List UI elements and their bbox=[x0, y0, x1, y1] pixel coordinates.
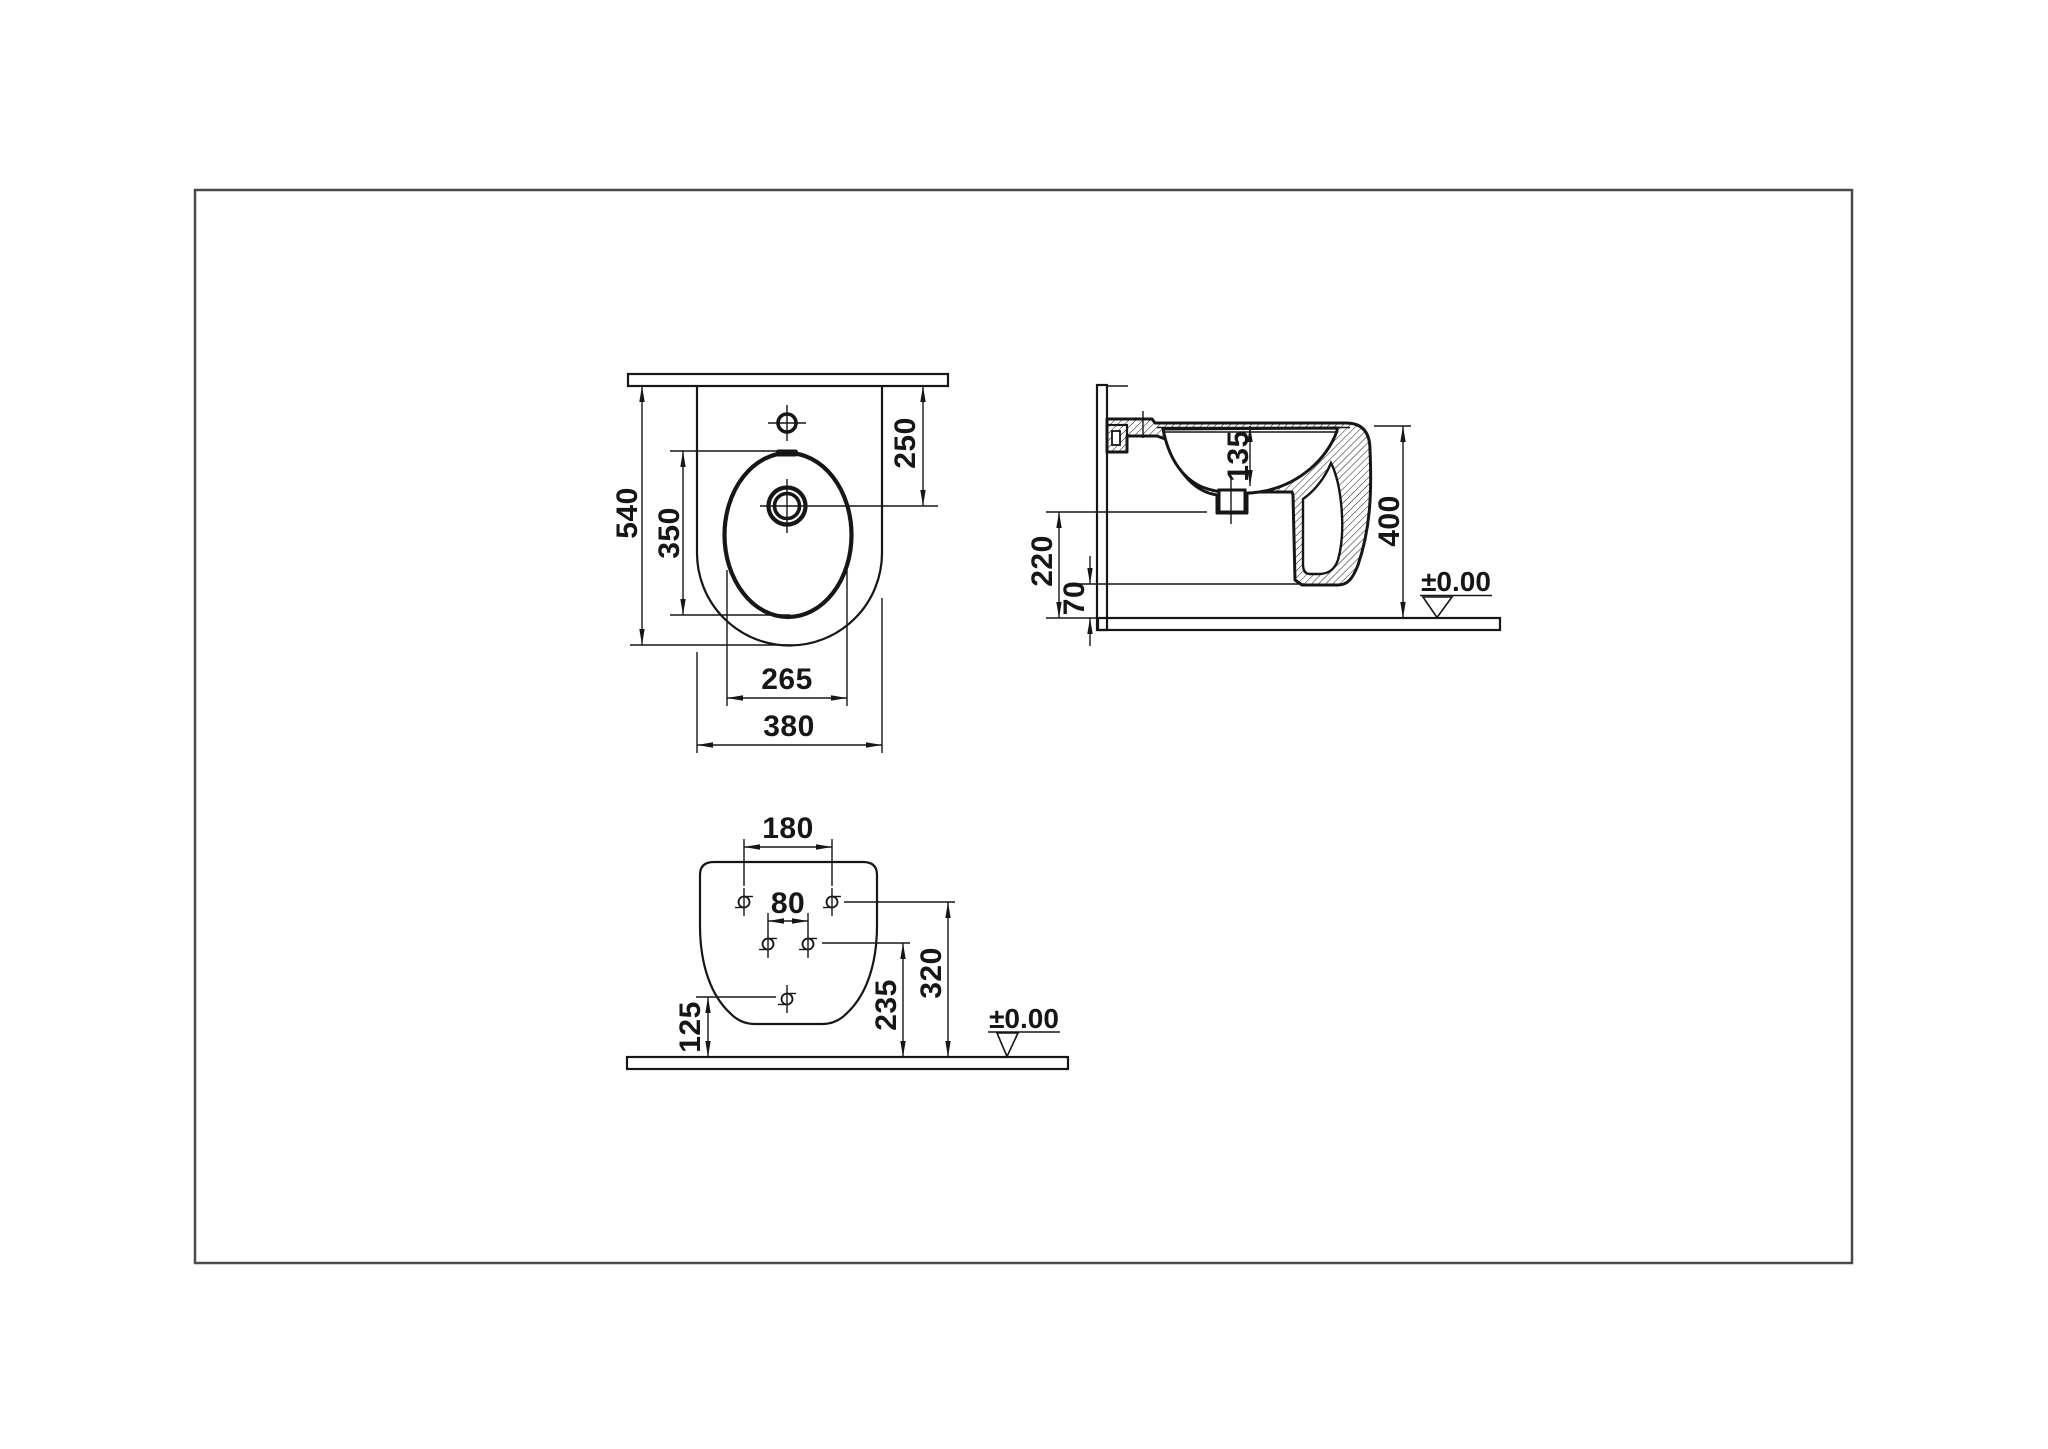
top-view: 540 350 250 265 380 bbox=[611, 374, 948, 753]
mounting-hole-mid-left bbox=[759, 930, 777, 958]
dim-label: 70 bbox=[1058, 581, 1091, 615]
dim-label: 540 bbox=[611, 487, 644, 539]
dim-label: 80 bbox=[771, 887, 805, 920]
dim-rim-height-400: 400 bbox=[1373, 426, 1406, 618]
dim-middle-holes-height-235: 235 bbox=[822, 943, 910, 1057]
datum-label: ±0.00 bbox=[989, 1003, 1059, 1034]
dim-clearance-70: 70 bbox=[1058, 556, 1091, 646]
floor-hatch bbox=[1098, 618, 1500, 630]
side-view: 135 400 220 70 ±0.00 bbox=[1026, 385, 1500, 646]
bidet-rim bbox=[725, 453, 852, 617]
drawing-canvas: 540 350 250 265 380 bbox=[0, 0, 2048, 1449]
dim-label: 135 bbox=[1222, 430, 1255, 482]
dim-lower-hole-height-125: 125 bbox=[674, 997, 776, 1057]
dim-label: 265 bbox=[761, 663, 813, 696]
mounting-hole-top-left bbox=[735, 888, 753, 916]
dim-label: 220 bbox=[1026, 535, 1059, 587]
faucet-hole bbox=[768, 405, 806, 441]
floor-datum-side: ±0.00 bbox=[1420, 566, 1492, 618]
wall-section-hatch bbox=[628, 374, 948, 386]
dim-middle-holes-80: 80 bbox=[768, 887, 808, 931]
dim-overall-depth-540: 540 bbox=[611, 386, 792, 645]
datum-triangle bbox=[997, 1033, 1018, 1057]
back-view: 180 80 320 235 125 ±0.00 bbox=[627, 812, 1068, 1069]
dim-drain-height-220: 220 bbox=[1026, 512, 1059, 618]
dim-label: 250 bbox=[889, 417, 922, 469]
dim-label: 180 bbox=[762, 812, 814, 845]
dim-label: 400 bbox=[1373, 495, 1406, 547]
floor-datum-back: ±0.00 bbox=[988, 1003, 1060, 1057]
dim-bowl-width-265: 265 bbox=[727, 570, 847, 706]
floor-hatch-back bbox=[627, 1057, 1068, 1069]
datum-triangle bbox=[1423, 597, 1452, 618]
datum-label: ±0.00 bbox=[1421, 566, 1491, 597]
dim-label: 235 bbox=[870, 979, 903, 1031]
dim-drain-from-wall-250: 250 bbox=[889, 386, 923, 506]
mounting-hole-top-right bbox=[823, 888, 841, 916]
dim-bowl-depth-135: 135 bbox=[1222, 426, 1255, 486]
dim-label: 380 bbox=[763, 710, 815, 743]
dim-upper-holes-180: 180 bbox=[744, 812, 832, 886]
lug-hole bbox=[1112, 431, 1120, 445]
drawing-border bbox=[195, 190, 1852, 1263]
dim-bowl-length-350: 350 bbox=[653, 451, 790, 615]
dim-label: 320 bbox=[915, 947, 948, 999]
drain-outlet bbox=[1219, 490, 1245, 512]
dim-label: 350 bbox=[653, 507, 686, 559]
mounting-hole-mid-right bbox=[799, 930, 817, 958]
dim-label: 125 bbox=[674, 1001, 707, 1053]
mounting-hole-bottom bbox=[778, 985, 796, 1013]
